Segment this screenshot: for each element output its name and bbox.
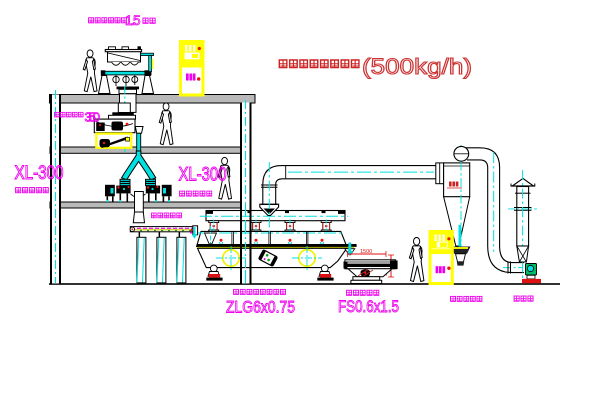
svg-text:(500kg/h): (500kg/h) bbox=[362, 54, 472, 79]
svg-text:FS0.6x1.5: FS0.6x1.5 bbox=[338, 298, 399, 316]
svg-text:1.5: 1.5 bbox=[125, 13, 141, 28]
svg-text:XL-300: XL-300 bbox=[15, 163, 64, 184]
svg-text:ZLG6x0.75: ZLG6x0.75 bbox=[226, 299, 295, 317]
svg-text:XL-300: XL-300 bbox=[179, 165, 227, 186]
svg-text:1500: 1500 bbox=[360, 249, 372, 255]
svg-text:350: 350 bbox=[85, 110, 101, 125]
